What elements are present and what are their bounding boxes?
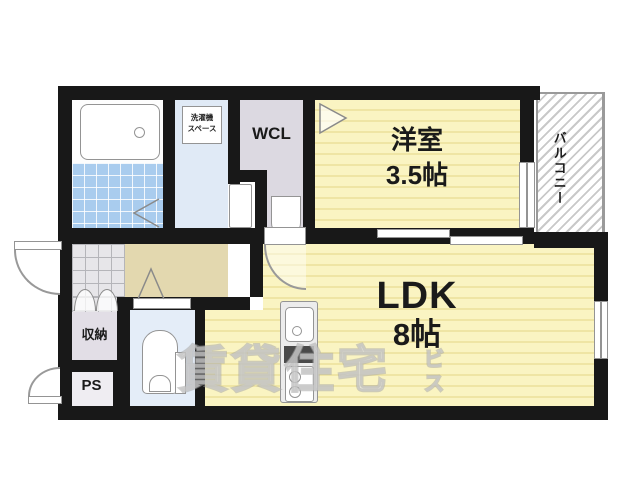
door-symbol-overlay bbox=[0, 0, 638, 480]
ldk-label: LDK bbox=[342, 277, 492, 317]
western-room-label: 洋室 bbox=[342, 127, 492, 154]
balcony-label: バルコニー bbox=[552, 112, 566, 224]
watermark-tail: ビ ス bbox=[424, 348, 448, 396]
watermark-tail-bottom: ス bbox=[424, 372, 448, 396]
wcl-label: WCL bbox=[240, 125, 303, 143]
western-room-size: 3.5帖 bbox=[342, 162, 492, 189]
ldk-size: 8帖 bbox=[342, 319, 492, 352]
bathroom-folding-door-symbol bbox=[134, 199, 159, 227]
floorplan: 洗濯機 スペース bbox=[0, 0, 638, 480]
storage-label: 収納 bbox=[72, 328, 117, 342]
hallway-door-symbol bbox=[138, 269, 164, 299]
pipe-space-label: PS bbox=[70, 378, 113, 394]
